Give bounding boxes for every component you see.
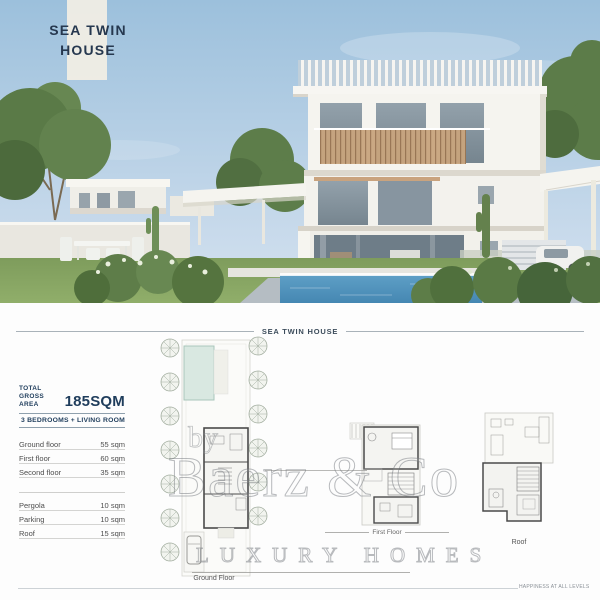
- footer-rule: [18, 588, 518, 589]
- property-brochure: SEA TWIN HOUSE SEA TWIN HOUSE TOTAL GROS…: [0, 0, 600, 600]
- roof-label: Roof: [477, 539, 561, 546]
- area-summary-panel: TOTAL GROSS AREA 185SQM 3 BEDROOMS + LIV…: [19, 385, 125, 539]
- roof-plan: [477, 409, 561, 527]
- table-row: Roof 15 sqm: [19, 525, 125, 539]
- bedrooms-subtitle: 3 BEDROOMS + LIVING ROOM: [19, 413, 125, 428]
- hero-title-line1: SEA TWIN: [33, 20, 143, 40]
- section-title: SEA TWIN HOUSE: [262, 327, 338, 336]
- section-heading: SEA TWIN HOUSE: [16, 327, 584, 336]
- plan-pool: [184, 346, 214, 400]
- plan-connector-line: [265, 470, 367, 471]
- ground-floor-label: Ground Floor: [158, 575, 270, 582]
- heading-rule-left: [16, 331, 254, 332]
- table-row: Ground floor 55 sqm: [19, 436, 125, 450]
- table-row: First floor 60 sqm: [19, 450, 125, 464]
- table-row: Pergola 10 sqm: [19, 497, 125, 511]
- table-divider: [19, 478, 125, 493]
- floorplan-sheet: SEA TWIN HOUSE TOTAL GROSS AREA 185SQM 3…: [0, 303, 600, 600]
- ground-floor-plan: [158, 336, 270, 582]
- first-floor-label: First Floor: [325, 529, 449, 536]
- total-gross-area: TOTAL GROSS AREA 185SQM: [19, 385, 125, 409]
- plan-house: [204, 428, 248, 528]
- area-table: Ground floor 55 sqm First floor 60 sqm S…: [19, 436, 125, 539]
- first-floor-plan: [348, 421, 430, 533]
- total-gross-area-label: TOTAL GROSS AREA: [19, 385, 59, 409]
- heading-rule-right: [346, 331, 584, 332]
- villa-photo: SEA TWIN HOUSE: [0, 0, 600, 303]
- ground-floor-label-line: [192, 572, 410, 573]
- table-row: Parking 10 sqm: [19, 511, 125, 525]
- table-row: Second floor 35 sqm: [19, 464, 125, 478]
- footer-tagline: HAPPINESS AT ALL LEVELS: [519, 584, 589, 590]
- hero-title-line2: HOUSE: [33, 40, 143, 60]
- total-gross-area-value: 185SQM: [65, 395, 125, 409]
- hero-title: SEA TWIN HOUSE: [33, 20, 143, 60]
